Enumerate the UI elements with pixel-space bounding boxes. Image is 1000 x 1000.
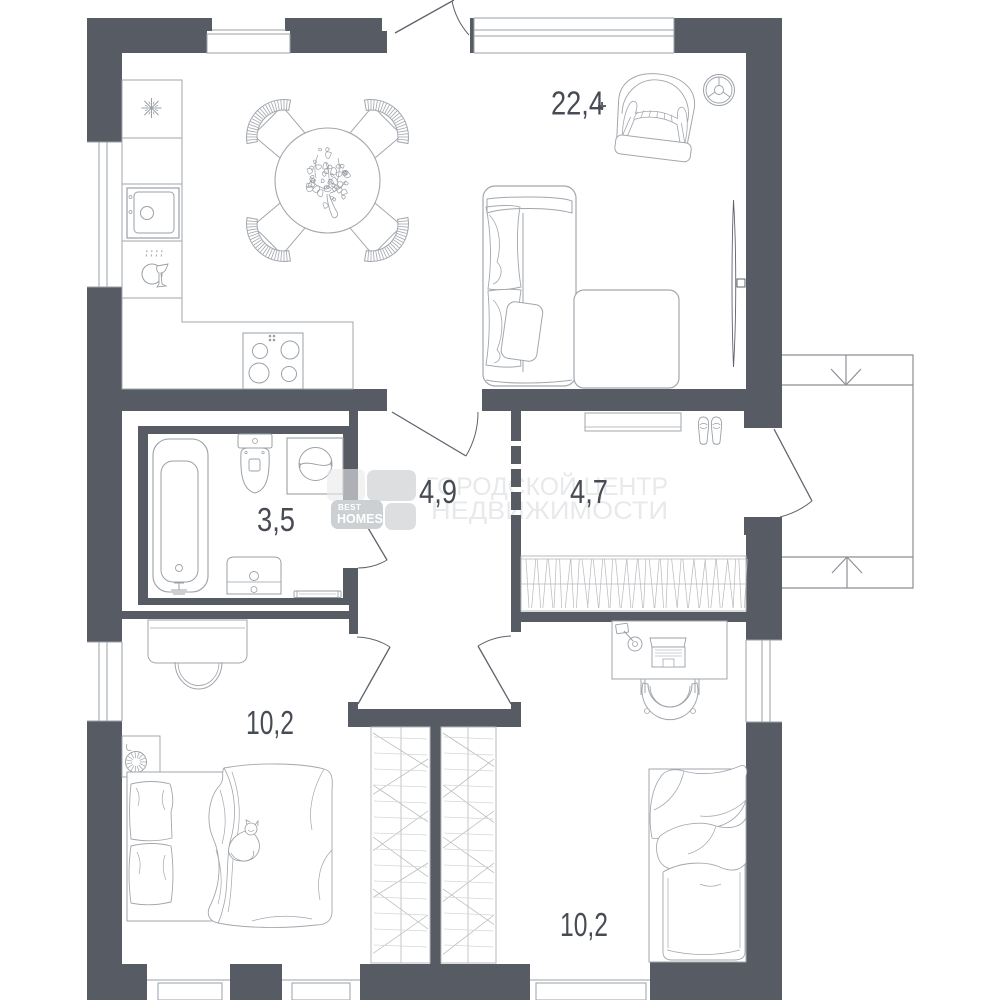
svg-text:10,2: 10,2 (246, 704, 294, 741)
svg-text:10,2: 10,2 (560, 906, 608, 943)
svg-text:3,5: 3,5 (257, 501, 295, 538)
svg-text:4,9: 4,9 (419, 473, 457, 510)
svg-text:BEST: BEST (338, 503, 361, 512)
svg-text:НЕДВИЖИМОСТИ: НЕДВИЖИМОСТИ (431, 497, 668, 525)
svg-text:HOMES: HOMES (337, 512, 383, 526)
svg-text:4,7: 4,7 (570, 473, 608, 510)
svg-text:22,4: 22,4 (551, 85, 604, 122)
